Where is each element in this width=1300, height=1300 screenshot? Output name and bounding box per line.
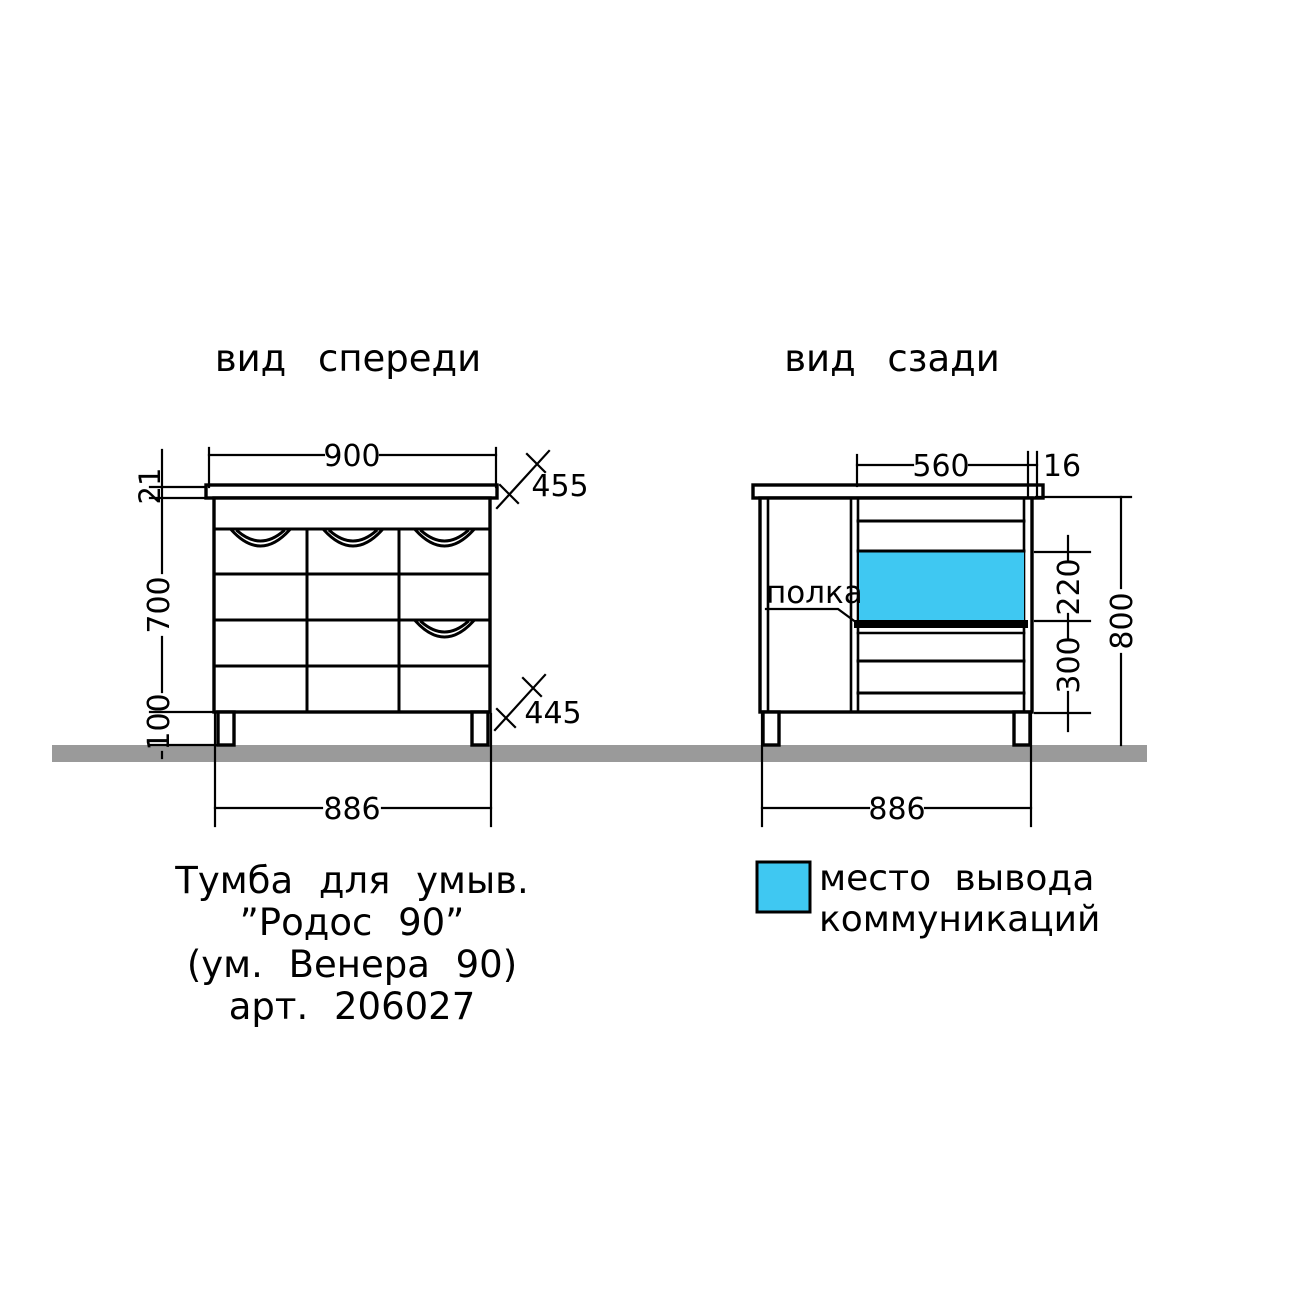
product-name-line2: ”Родос 90” xyxy=(240,901,465,944)
product-name-line1: Тумба для умыв. xyxy=(174,859,529,902)
product-name-line3: (ум. Венера 90) xyxy=(187,943,517,986)
dim-21-label: 21 xyxy=(133,468,167,505)
front-leg-right xyxy=(472,712,488,745)
front-leg-left xyxy=(218,712,234,745)
dim-886-back-label: 886 xyxy=(868,792,925,827)
drawing-canvas: вид спереди вид сзади 900 xyxy=(0,0,1300,1300)
dim-560-label: 560 xyxy=(912,449,969,484)
dim-800-label: 800 xyxy=(1105,592,1140,649)
dim-455: 455 xyxy=(497,451,589,508)
product-caption: Тумба для умыв. ”Родос 90” (ум. Венера 9… xyxy=(174,859,529,1028)
dim-900: 900 xyxy=(209,439,496,487)
dim-700-label: 700 xyxy=(142,576,177,633)
legend: место вывода коммуникаций xyxy=(757,858,1100,940)
dim-16-label: 16 xyxy=(1043,449,1081,484)
front-countertop xyxy=(206,485,497,498)
dim-100-label: 100 xyxy=(142,693,177,750)
legend-text-line2: коммуникаций xyxy=(819,899,1100,940)
technical-drawing: вид спереди вид сзади 900 xyxy=(0,0,1300,1300)
front-view-title: вид спереди xyxy=(215,337,481,380)
dim-886-back: 886 xyxy=(762,714,1031,827)
back-countertop xyxy=(753,485,1043,498)
legend-text-line1: место вывода xyxy=(819,858,1094,899)
dim-900-label: 900 xyxy=(323,439,380,474)
back-view-title: вид сзади xyxy=(784,337,1000,380)
back-view: полка 560 16 220 300 800 xyxy=(753,449,1140,827)
dim-220-300-chain: 220 300 xyxy=(1035,536,1090,731)
front-view: 900 455 445 21 700 100 xyxy=(133,439,589,827)
dim-886-front-label: 886 xyxy=(323,792,380,827)
product-article: арт. 206027 xyxy=(229,985,475,1028)
dim-455-label: 455 xyxy=(531,469,588,504)
back-leg-right xyxy=(1014,712,1030,745)
dim-445: 445 xyxy=(495,675,582,731)
floor-line xyxy=(52,745,1147,762)
back-leg-left xyxy=(763,712,779,745)
dim-886-front: 886 xyxy=(215,714,491,827)
dim-300-label: 300 xyxy=(1052,636,1087,693)
dim-445-label: 445 xyxy=(524,696,581,731)
dim-220-label: 220 xyxy=(1052,558,1087,615)
shelf-label: полка xyxy=(766,575,863,611)
communication-outlet-area xyxy=(859,553,1024,621)
legend-swatch xyxy=(757,862,810,912)
